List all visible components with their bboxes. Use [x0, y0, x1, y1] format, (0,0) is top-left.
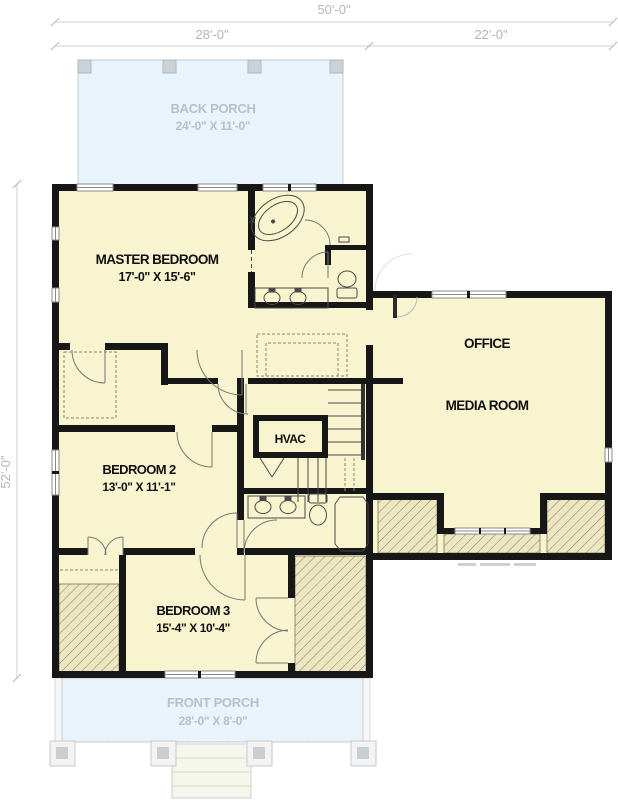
dim-right-width: 22'-0"	[474, 27, 508, 42]
label-bedroom-3: BEDROOM 3	[156, 603, 230, 618]
dim-overall-width: 50'-0"	[317, 2, 351, 17]
floor-plan-drawing: 50'-0" 28'-0" 22'-0" 52'-0" BACK PORCH 2…	[0, 0, 618, 800]
fine-print-smudge	[458, 563, 536, 566]
office-door-leaf	[393, 295, 397, 318]
label-back-porch: BACK PORCH	[170, 101, 255, 116]
label-master-bedroom-size: 17'-0" X 15'-6"	[118, 270, 196, 284]
dim-left-width: 28'-0"	[195, 27, 229, 42]
label-hvac: HVAC	[275, 432, 307, 446]
label-back-porch-size: 24'-0" X 11'-0"	[176, 119, 251, 133]
label-media-room: MEDIA ROOM	[446, 398, 529, 413]
lower-roof-door-arc	[375, 254, 412, 291]
porch-steps	[172, 744, 251, 798]
label-master-bedroom: MASTER BEDROOM	[96, 252, 219, 267]
label-bedroom-3-size: 15'-4" X 10'-4"	[156, 621, 230, 635]
label-front-porch-size: 28'-0" X 8'-0"	[179, 714, 248, 728]
label-bedroom-2-size: 13'-0" X 11'-1"	[102, 480, 175, 494]
label-office: OFFICE	[464, 336, 510, 351]
floor-plan-sheet: 50'-0" 28'-0" 22'-0" 52'-0" BACK PORCH 2…	[0, 0, 618, 800]
label-front-porch: FRONT PORCH	[167, 695, 259, 710]
label-bedroom-2: BEDROOM 2	[102, 462, 176, 477]
dim-overall-depth: 52'-0"	[0, 455, 13, 489]
